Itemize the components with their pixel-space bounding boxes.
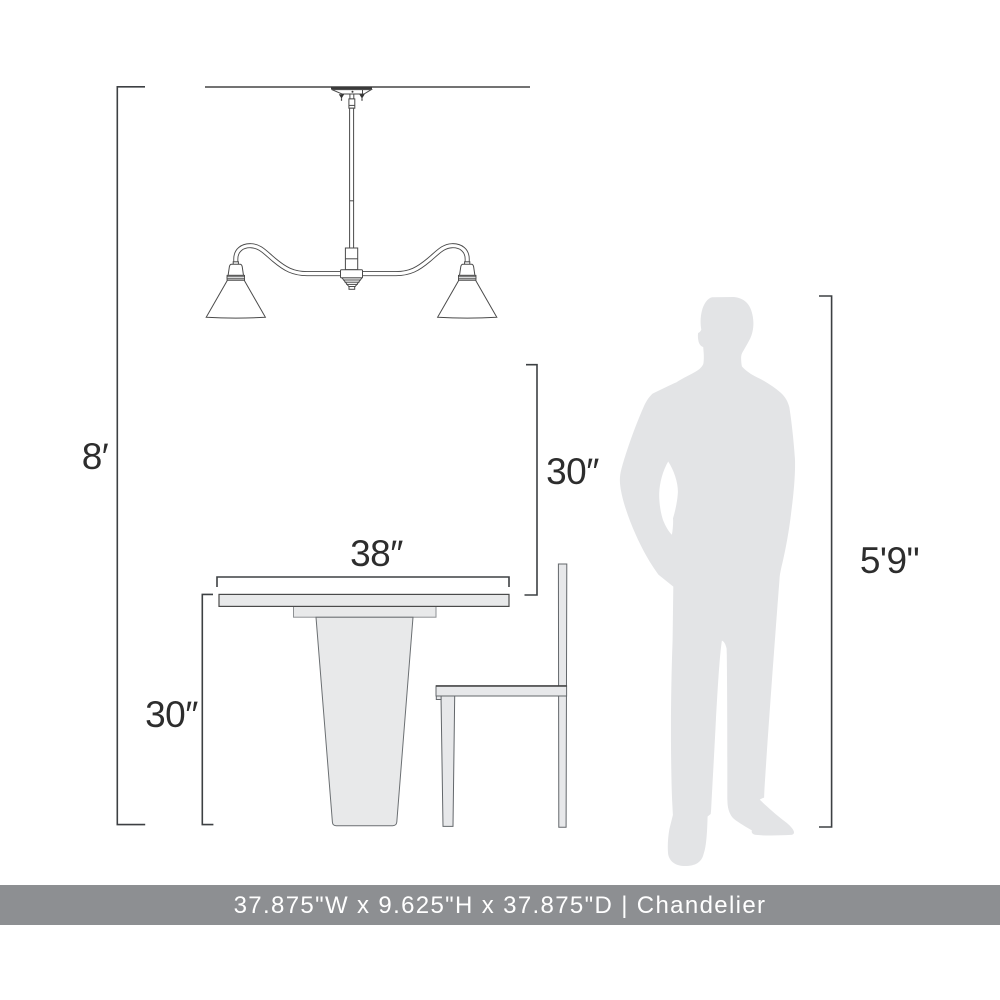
svg-text:8′: 8′	[82, 436, 109, 477]
svg-text:37.875"W x 9.625"H x 37.875"D: 37.875"W x 9.625"H x 37.875"D | Chandeli…	[234, 892, 767, 919]
svg-text:30″: 30″	[145, 694, 198, 735]
svg-text:30″: 30″	[546, 451, 599, 492]
svg-text:5'9": 5'9"	[860, 540, 919, 581]
svg-text:38″: 38″	[350, 533, 403, 574]
